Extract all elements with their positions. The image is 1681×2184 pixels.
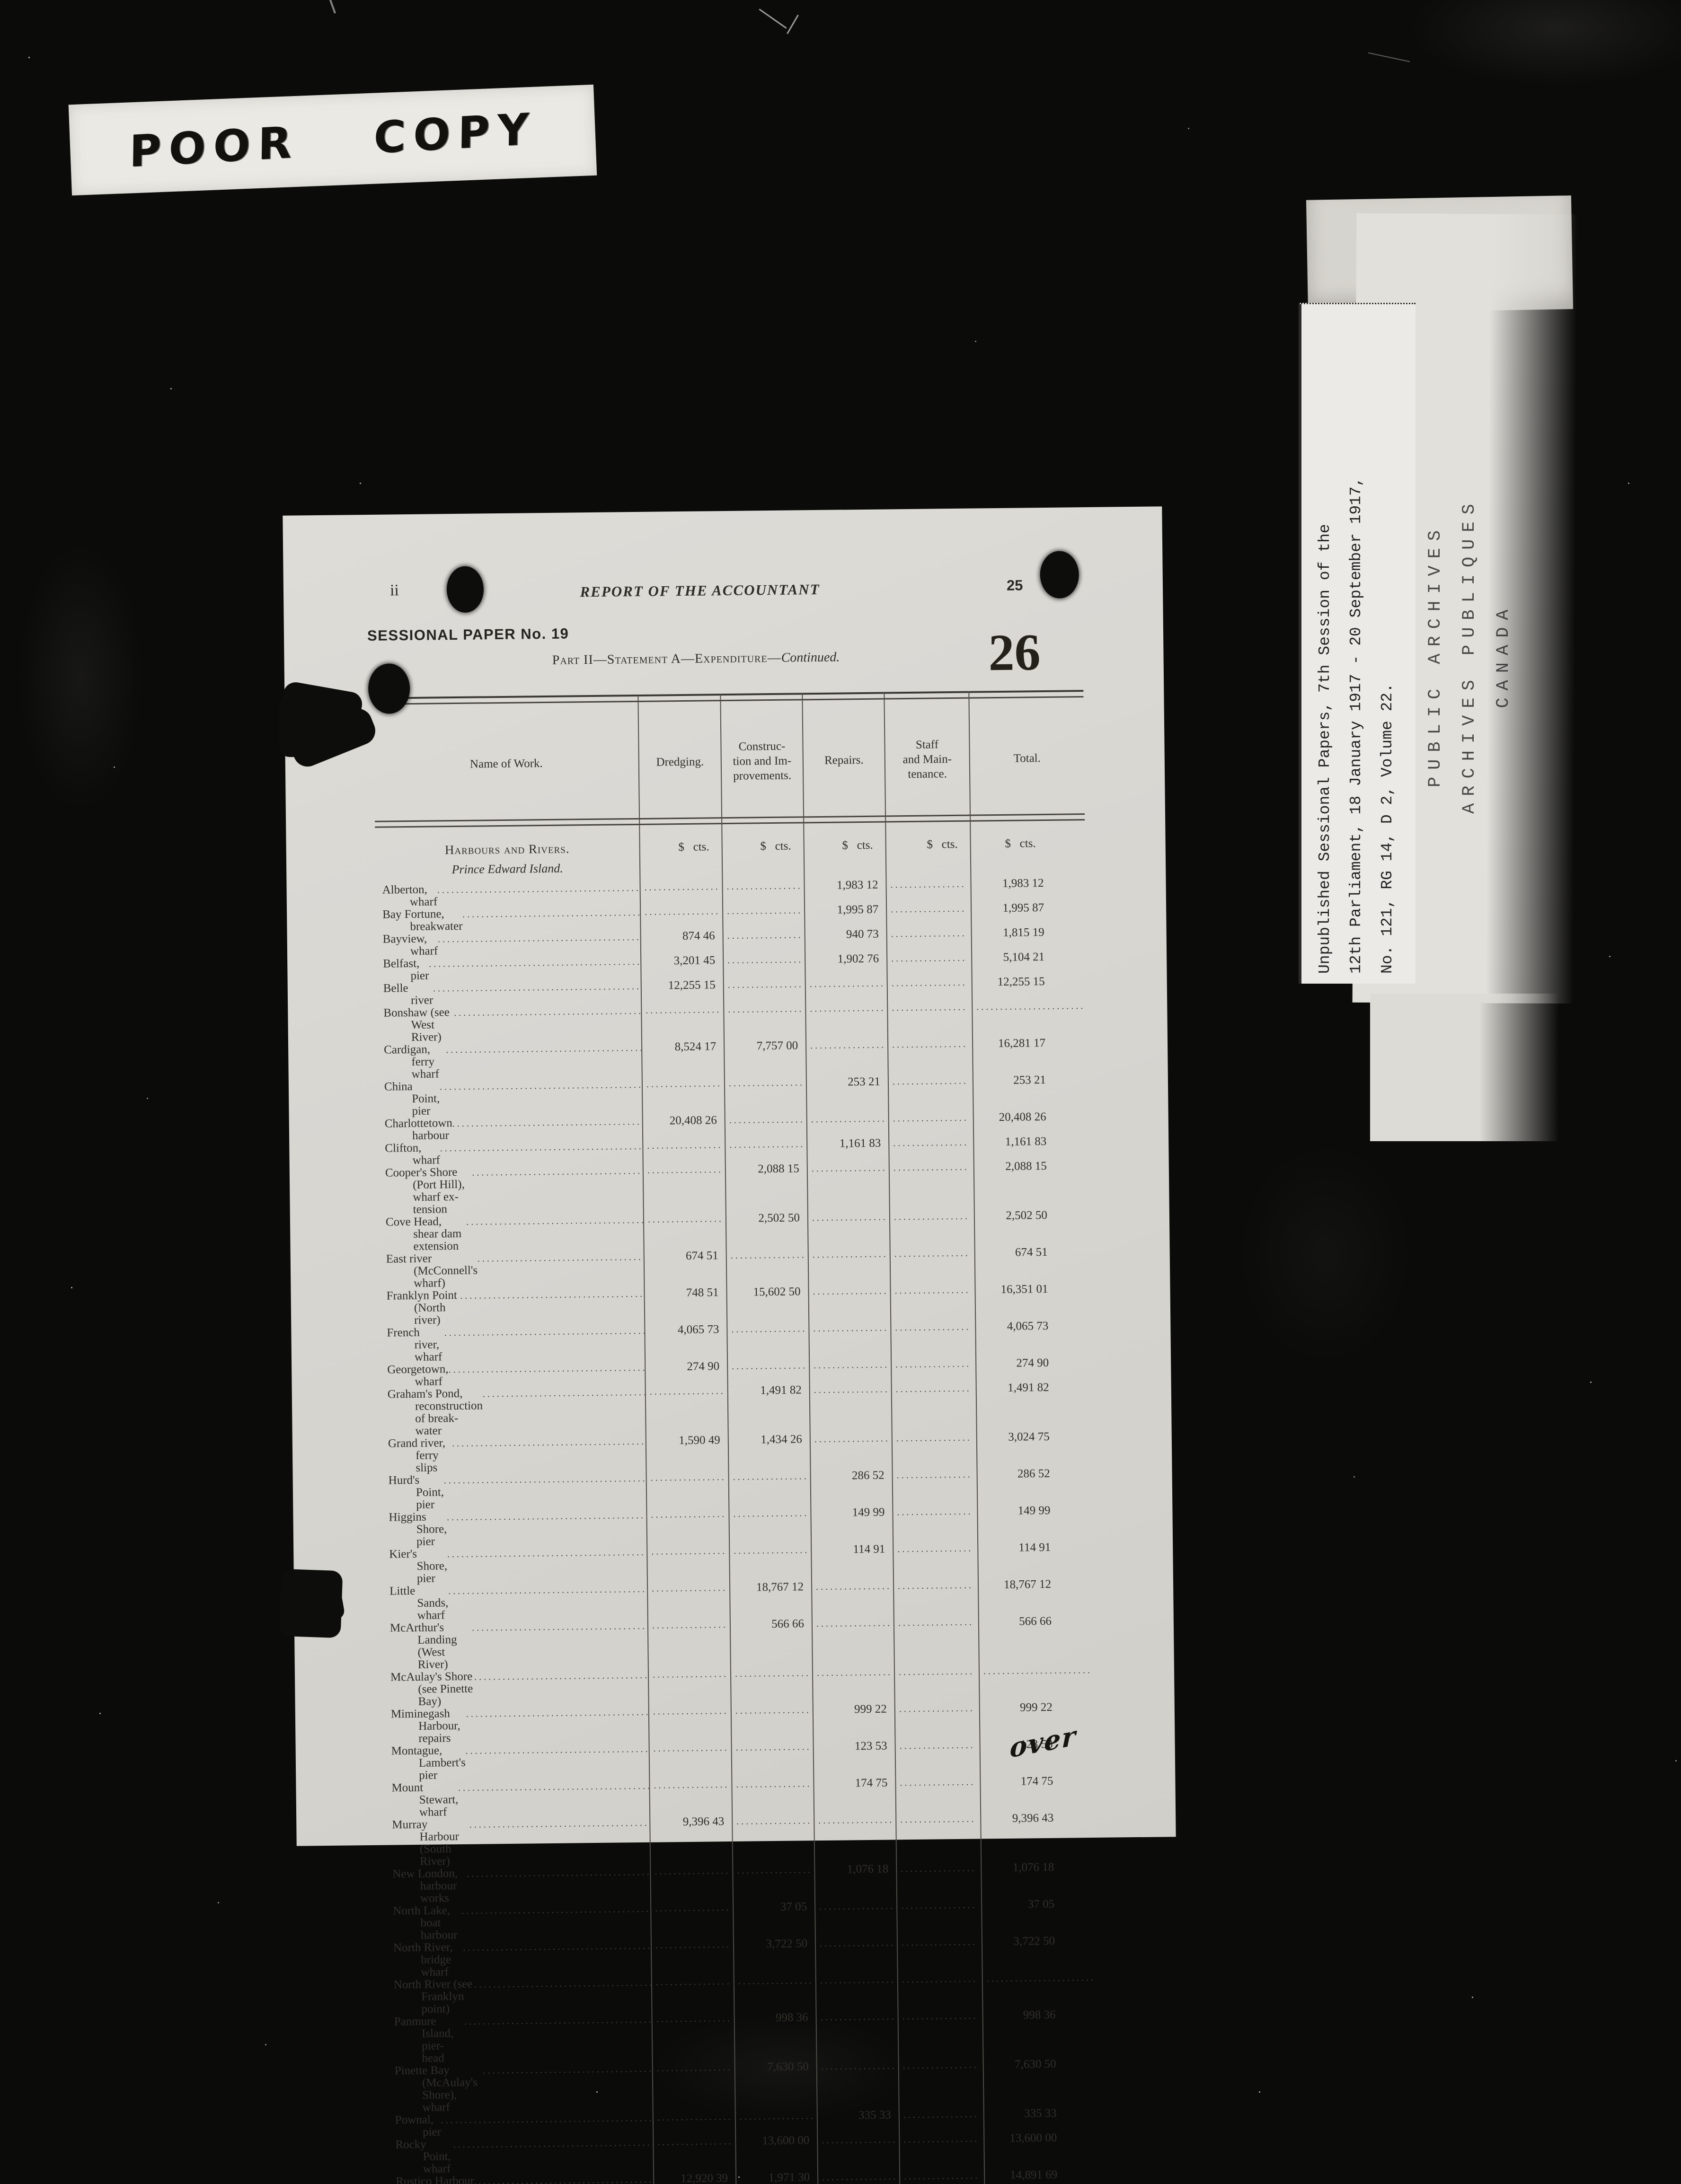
row-name-text: Little Sands, wharf bbox=[389, 1585, 449, 1622]
amount-cell bbox=[814, 1814, 896, 1864]
row-name-text: Kier's Shore, pier bbox=[389, 1548, 447, 1585]
amount-cell: 1,434 26 bbox=[728, 1433, 810, 1471]
amount-cell bbox=[893, 1579, 978, 1617]
amount-cell bbox=[652, 2061, 735, 2112]
amount-cell bbox=[894, 1616, 979, 1666]
dot-leader bbox=[462, 906, 640, 921]
amount-cell: 748 51 bbox=[644, 1286, 726, 1324]
amount-cell bbox=[643, 1163, 725, 1214]
public-archives-line: ARCHIVES PUBLIQUES bbox=[1452, 442, 1486, 868]
row-name-text: Panmure Island, pier-head bbox=[394, 2015, 465, 2065]
amount-cell bbox=[732, 1814, 814, 1865]
name-cell: Little Sands, wharf bbox=[383, 1583, 647, 1622]
amount-cell bbox=[888, 1075, 973, 1113]
dot-leader bbox=[447, 1509, 646, 1524]
dot-leader bbox=[474, 1976, 651, 1991]
dot-leader bbox=[463, 1939, 651, 1954]
dot-leader bbox=[466, 1706, 648, 1720]
public-archives-line: CANADA bbox=[1486, 442, 1521, 868]
amount-cell bbox=[886, 927, 972, 953]
amount-cell bbox=[735, 2110, 817, 2135]
amount-cell: 7,630 50 bbox=[983, 2058, 1098, 2108]
poor-copy-text: POOR COPY bbox=[129, 103, 537, 176]
row-name-text: China Point, pier bbox=[384, 1080, 440, 1118]
amount-cell: 1,491 82 bbox=[727, 1384, 810, 1434]
row-name-text: Murray Harbour (South River) bbox=[392, 1818, 470, 1868]
film-scratch bbox=[759, 9, 787, 29]
amount-cell bbox=[724, 1076, 806, 1114]
amount-cell: 149 99 bbox=[977, 1504, 1092, 1542]
amount-cell bbox=[897, 1936, 982, 1974]
amount-cell bbox=[646, 1545, 729, 1583]
name-cell: New London, harbour works bbox=[386, 1866, 650, 1905]
amount-cell bbox=[653, 2135, 735, 2173]
unit-cell: $ cts. bbox=[639, 828, 722, 854]
row-name-text: Pownal, pier bbox=[395, 2114, 441, 2139]
folio-left: ii bbox=[390, 581, 399, 599]
amount-cell bbox=[807, 1211, 890, 1249]
table-row: Panmure Island, pier-head998 36998 36 bbox=[388, 2008, 1098, 2065]
amount-cell bbox=[979, 1664, 1094, 1702]
amount-cell: 174 75 bbox=[980, 1775, 1095, 1813]
amount-cell bbox=[728, 1470, 811, 1508]
amount-cell bbox=[886, 952, 972, 978]
amount-cell bbox=[646, 1471, 729, 1509]
dot-leader bbox=[465, 1743, 648, 1757]
amount-cell: 114 91 bbox=[977, 1541, 1093, 1579]
row-name-text: Rocky Point, wharf bbox=[395, 2138, 453, 2175]
amount-cell bbox=[888, 1136, 973, 1162]
amount-cell: 9,396 43 bbox=[649, 1815, 732, 1866]
name-cell: Clifton, wharf bbox=[378, 1140, 643, 1167]
amount-cell bbox=[652, 2012, 734, 2062]
name-cell: Mount Stewart, wharf bbox=[385, 1779, 649, 1819]
dot-leader bbox=[461, 1902, 650, 1917]
statement-title: Part II—Statement A—Expenditure—Continue… bbox=[440, 649, 951, 669]
amount-cell: 174 75 bbox=[813, 1777, 895, 1814]
name-cell: Georgetown, wharf bbox=[380, 1361, 645, 1389]
section-title: Prince Edward Island. bbox=[375, 854, 640, 884]
amount-cell bbox=[899, 2108, 984, 2133]
row-name-text: French river, wharf bbox=[387, 1326, 444, 1364]
row-name-text: Mount Stewart, wharf bbox=[391, 1781, 458, 1819]
amount-cell bbox=[723, 978, 805, 1004]
amount-cell bbox=[646, 1508, 729, 1546]
row-name-text: Bonshaw (see West River) bbox=[383, 1006, 454, 1044]
amount-cell bbox=[726, 1249, 808, 1286]
dot-leader bbox=[460, 1287, 644, 1302]
dot-leader bbox=[458, 1779, 649, 1794]
amount-cell bbox=[812, 1617, 894, 1667]
amount-cell: 2,088 15 bbox=[725, 1162, 807, 1213]
amount-cell: 566 66 bbox=[730, 1618, 812, 1668]
amount-cell: 15,602 50 bbox=[726, 1286, 808, 1323]
row-name-text: Clifton, wharf bbox=[385, 1142, 440, 1167]
row-name-text: Franklyn Point (North river) bbox=[386, 1289, 460, 1327]
column-header: Name of Work. bbox=[374, 706, 639, 821]
film-smudge bbox=[1410, 0, 1681, 85]
amount-cell: 18,767 12 bbox=[729, 1581, 812, 1619]
amount-cell: 1,902 76 bbox=[805, 952, 887, 978]
film-scratch bbox=[329, 0, 336, 14]
amount-cell bbox=[889, 1161, 974, 1211]
row-name-text: McAulay's Shore (see Pinette Bay) bbox=[390, 1671, 475, 1708]
amount-cell: 7,630 50 bbox=[734, 2061, 817, 2111]
amount-cell bbox=[653, 2111, 735, 2136]
name-cell: Cooper's Shore (Port Hill), wharf ex- te… bbox=[379, 1164, 643, 1216]
amount-cell bbox=[891, 1358, 976, 1383]
amount-cell bbox=[722, 852, 804, 881]
amount-cell bbox=[885, 878, 971, 904]
page-number-stamp: 26 bbox=[988, 622, 1041, 683]
name-cell: Grand river, ferry slips bbox=[381, 1435, 646, 1475]
amount-cell: 874 46 bbox=[640, 930, 723, 955]
film-scratch bbox=[787, 15, 799, 34]
amount-cell bbox=[641, 1004, 724, 1041]
dot-leader bbox=[433, 980, 641, 995]
name-cell: Higgins Shore, pier bbox=[382, 1509, 646, 1549]
amount-cell bbox=[891, 1383, 976, 1433]
amount-cell bbox=[649, 1742, 732, 1779]
name-cell: Cardigan, ferry wharf bbox=[377, 1041, 642, 1081]
amount-cell bbox=[897, 2009, 982, 2060]
sessional-paper-line: SESSIONAL PAPER No. 19 bbox=[367, 625, 569, 644]
row-name-text: Hurd's Point, pier bbox=[389, 1474, 444, 1511]
statement-title-continued: Continued. bbox=[781, 650, 840, 665]
amount-cell bbox=[723, 929, 805, 954]
amount-cell bbox=[982, 1972, 1097, 2010]
amount-cell bbox=[806, 1112, 889, 1138]
column-header: Repairs. bbox=[802, 704, 885, 817]
film-scratch bbox=[1368, 53, 1410, 62]
dot-leader bbox=[444, 1472, 646, 1487]
name-cell: Murray Harbour (South River) bbox=[385, 1816, 650, 1868]
name-cell: Cove Head, shear dam extension bbox=[379, 1214, 644, 1253]
amount-cell bbox=[808, 1285, 890, 1322]
row-name-text: North Lake, boat harbour bbox=[393, 1904, 462, 1942]
amount-cell bbox=[805, 1002, 887, 1039]
amount-cell: 149 99 bbox=[810, 1506, 893, 1544]
row-name-text: Cardigan, ferry wharf bbox=[384, 1043, 446, 1081]
name-cell: Graham's Pond, reconstruction of break- … bbox=[381, 1386, 646, 1438]
archive-reference-text: Unpublished Sessional Papers, 7th Sessio… bbox=[1309, 311, 1403, 974]
amount-cell: 2,502 50 bbox=[974, 1209, 1089, 1247]
amount-cell: 20,408 26 bbox=[642, 1114, 725, 1140]
amount-cell bbox=[889, 1210, 974, 1248]
column-header: Total. bbox=[969, 702, 1085, 815]
name-cell: French river, wharf bbox=[380, 1324, 645, 1364]
amount-cell: 253 21 bbox=[973, 1074, 1088, 1112]
amount-cell bbox=[640, 905, 723, 931]
unit-cell: $ cts. bbox=[885, 826, 970, 852]
dot-leader bbox=[429, 955, 640, 970]
dot-leader bbox=[474, 1669, 648, 1683]
amount-cell: 274 90 bbox=[975, 1356, 1091, 1383]
amount-cell bbox=[807, 1162, 889, 1212]
amount-cell bbox=[648, 1705, 731, 1743]
name-cell: Rustico Harbour, beach protection bbox=[389, 2173, 654, 2184]
amount-cell bbox=[649, 1779, 732, 1816]
amount-cell bbox=[723, 1003, 805, 1040]
row-name-text: Bay Fortune, breakwater bbox=[382, 908, 463, 933]
name-cell: Hurd's Point, pier bbox=[382, 1472, 646, 1512]
dot-leader bbox=[467, 1866, 650, 1880]
name-cell: China Point, pier bbox=[378, 1078, 642, 1118]
amount-cell bbox=[815, 2010, 898, 2061]
row-name-text: Cove Head, shear dam extension bbox=[386, 1215, 467, 1253]
amount-cell bbox=[895, 1813, 981, 1863]
column-header: Construc- tion and Im- provements. bbox=[720, 705, 803, 817]
amount-cell bbox=[809, 1383, 892, 1433]
amount-cell: 4,065 73 bbox=[644, 1323, 727, 1361]
amount-cell bbox=[729, 1544, 811, 1582]
dot-leader bbox=[437, 881, 640, 896]
amount-cell bbox=[894, 1739, 980, 1777]
dot-leader bbox=[478, 2173, 653, 2184]
amount-cell bbox=[887, 1038, 973, 1076]
amount-cell: 999 22 bbox=[813, 1703, 895, 1741]
amount-cell: 1,161 83 bbox=[973, 1135, 1088, 1161]
dot-leader bbox=[440, 1140, 643, 1154]
amount-cell: 1,491 82 bbox=[976, 1381, 1091, 1432]
name-cell: Miminegash Harbour, repairs bbox=[384, 1706, 649, 1745]
dot-leader bbox=[454, 1004, 641, 1019]
amount-cell bbox=[892, 1469, 977, 1506]
tape-strip bbox=[1370, 994, 1569, 1141]
dot-leader bbox=[444, 1324, 645, 1339]
amount-cell: 674 51 bbox=[644, 1250, 726, 1287]
row-name-text: Belfast, pier bbox=[383, 958, 429, 983]
name-cell: North River, bridge wharf bbox=[387, 1939, 651, 1979]
amount-cell: 940 73 bbox=[805, 928, 887, 953]
name-cell: North River (see Franklyn point) bbox=[387, 1976, 652, 2016]
row-name-text: Grand river, ferry slips bbox=[388, 1437, 452, 1474]
row-name-text: New London, harbour works bbox=[392, 1867, 467, 1905]
amount-cell bbox=[890, 1247, 975, 1285]
row-name-text: North River, bridge wharf bbox=[393, 1941, 463, 1979]
amount-cell: 1,995 87 bbox=[971, 901, 1086, 927]
name-cell: McAulay's Shore (see Pinette Bay) bbox=[384, 1669, 648, 1708]
dot-leader bbox=[440, 1078, 642, 1093]
dot-leader bbox=[469, 1816, 650, 1831]
amount-cell bbox=[887, 1001, 972, 1039]
amount-cell: 114 91 bbox=[811, 1543, 893, 1581]
amount-cell: 12,920 39 bbox=[653, 2172, 736, 2184]
dot-leader bbox=[478, 1251, 644, 1265]
expenditure-table: Name of Work.Dredging.Construc- tion and… bbox=[373, 690, 1107, 2184]
amount-cell bbox=[887, 977, 972, 1002]
amount-cell bbox=[725, 1113, 807, 1139]
name-cell: Belfast, pier bbox=[376, 955, 641, 983]
amount-cell bbox=[808, 1248, 890, 1286]
dot-leader bbox=[472, 1620, 647, 1634]
dot-leader bbox=[453, 2136, 653, 2151]
amount-cell bbox=[815, 1937, 897, 1974]
amount-cell: 3,722 50 bbox=[982, 1935, 1097, 1973]
amount-cell: 12,255 15 bbox=[972, 975, 1087, 1001]
amount-cell bbox=[896, 1899, 982, 1937]
amount-cell bbox=[817, 2133, 899, 2171]
amount-cell bbox=[723, 953, 805, 979]
amount-cell: 1,983 12 bbox=[970, 877, 1086, 903]
amount-cell bbox=[899, 2132, 984, 2170]
amount-cell: 3,201 45 bbox=[640, 954, 723, 980]
row-name-text: East river (McConnell's wharf) bbox=[386, 1252, 478, 1290]
name-cell: Belle river bbox=[377, 980, 641, 1007]
unit-cell: $ cts. bbox=[803, 827, 885, 853]
name-cell: Panmure Island, pier-head bbox=[388, 2013, 652, 2065]
archive-reference-line: 12th Parliament, 18 January 1917 - 20 Se… bbox=[1341, 311, 1372, 974]
amount-cell: 7,757 00 bbox=[724, 1039, 806, 1077]
unit-cell: $ cts. bbox=[721, 828, 804, 853]
amount-cell bbox=[892, 1506, 977, 1543]
amount-cell: 1,995 87 bbox=[804, 904, 886, 929]
amount-cell bbox=[647, 1582, 730, 1620]
folio-right: 25 bbox=[1007, 577, 1023, 594]
amount-cell bbox=[892, 1432, 977, 1470]
amount-cell bbox=[899, 2169, 984, 2184]
amount-cell: 16,351 01 bbox=[974, 1283, 1090, 1321]
amount-cell bbox=[898, 2059, 983, 2109]
amount-cell bbox=[810, 1432, 892, 1470]
public-archives-line: PUBLIC ARCHIVES bbox=[1418, 442, 1452, 868]
amount-cell bbox=[642, 1077, 725, 1115]
row-name-text: Alberton, wharf bbox=[382, 883, 437, 908]
amount-cell: 1,161 83 bbox=[806, 1137, 889, 1162]
amount-cell bbox=[728, 1507, 811, 1545]
dot-leader bbox=[466, 1214, 643, 1228]
amount-cell: 16,281 17 bbox=[972, 1037, 1088, 1075]
column-header: Staff and Main- tenance. bbox=[884, 703, 970, 816]
amount-cell bbox=[888, 1112, 973, 1137]
dot-leader bbox=[452, 1435, 646, 1450]
amount-cell bbox=[893, 1542, 978, 1580]
amount-cell: 286 52 bbox=[976, 1467, 1092, 1506]
table-row: Cooper's Shore (Port Hill), wharf ex- te… bbox=[379, 1160, 1089, 1216]
amount-cell: 274 90 bbox=[645, 1360, 727, 1386]
amount-cell: 253 21 bbox=[806, 1075, 888, 1113]
punch-hole bbox=[1040, 551, 1079, 599]
row-name-text: North River (see Franklyn point) bbox=[394, 1978, 475, 2016]
amount-cell bbox=[730, 1667, 813, 1705]
amount-cell bbox=[639, 853, 722, 881]
amount-cell: 9,396 43 bbox=[980, 1812, 1096, 1862]
amount-cell bbox=[731, 1741, 814, 1779]
amount-cell bbox=[650, 1865, 733, 1902]
amount-cell: 1,076 18 bbox=[981, 1861, 1096, 1899]
amount-cell: 8,524 17 bbox=[641, 1040, 724, 1078]
amount-cell bbox=[651, 1938, 734, 1976]
amount-cell bbox=[805, 977, 887, 1003]
name-cell: Rocky Point, wharf bbox=[389, 2136, 653, 2176]
name-cell: Pownal, pier bbox=[389, 2112, 653, 2139]
amount-cell: 998 36 bbox=[734, 2011, 816, 2061]
amount-cell bbox=[650, 1902, 733, 1939]
running-head: REPORT OF THE ACCOUNTANT bbox=[435, 580, 965, 602]
amount-cell: 1,971 30 bbox=[735, 2171, 818, 2184]
amount-cell bbox=[805, 1039, 888, 1076]
amount-cell bbox=[814, 1900, 897, 1937]
unit-cell: $ cts. bbox=[970, 825, 1085, 851]
row-name-text: Graham's Pond, reconstruction of break- … bbox=[388, 1387, 483, 1437]
row-name-text: McArthur's Landing (West River) bbox=[390, 1621, 472, 1672]
poor-copy-stamp: POOR COPY bbox=[69, 85, 597, 195]
amount-cell bbox=[890, 1284, 975, 1322]
row-name-text: Bayview, wharf bbox=[383, 933, 438, 958]
dot-leader bbox=[441, 2112, 653, 2127]
amount-cell bbox=[651, 1975, 734, 2013]
dot-leader bbox=[483, 1386, 645, 1400]
amount-cell: 3,722 50 bbox=[733, 1937, 815, 1975]
film-smudge bbox=[1240, 1145, 1410, 1363]
amount-cell bbox=[727, 1359, 809, 1385]
archive-reference-line: Unpublished Sessional Papers, 7th Sessio… bbox=[1309, 311, 1341, 974]
amount-cell bbox=[894, 1702, 980, 1740]
table-row: Murray Harbour (South River)9,396 439,39… bbox=[385, 1812, 1096, 1868]
name-cell: Franklyn Point (North river) bbox=[380, 1287, 644, 1327]
name-cell: North Lake, boat harbour bbox=[386, 1902, 651, 1942]
dot-leader bbox=[464, 2013, 652, 2028]
amount-cell: 14,891 69 bbox=[984, 2168, 1099, 2184]
row-name-text: Pinette Bay (McAulay's Shore), wharf bbox=[395, 2064, 484, 2114]
dot-leader bbox=[448, 1583, 647, 1597]
amount-cell bbox=[639, 881, 722, 906]
amount-cell: 335 33 bbox=[983, 2107, 1099, 2133]
amount-cell: 286 52 bbox=[810, 1469, 893, 1507]
amount-cell bbox=[726, 1322, 809, 1360]
row-name-text: Miminegash Harbour, repairs bbox=[391, 1708, 467, 1745]
row-name-text: Montague, Lambert's pier bbox=[391, 1744, 466, 1782]
row-name-text: Charlottetown harbour bbox=[385, 1117, 453, 1142]
document-page: ii REPORT OF THE ACCOUNTANT 25 SESSIONAL… bbox=[283, 506, 1176, 1846]
amount-cell: 1,590 49 bbox=[646, 1434, 728, 1472]
amount-cell: 20,408 26 bbox=[973, 1110, 1088, 1136]
amount-cell: 566 66 bbox=[978, 1615, 1094, 1665]
amount-cell bbox=[725, 1138, 807, 1163]
row-name-text: Georgetown, wharf bbox=[387, 1363, 449, 1388]
row-name-text: Cooper's Shore (Port Hill), wharf ex- te… bbox=[385, 1166, 473, 1216]
amount-cell bbox=[972, 1000, 1087, 1038]
amount-cell bbox=[809, 1358, 891, 1384]
amount-cell: 37 05 bbox=[981, 1898, 1097, 1936]
amount-cell bbox=[890, 1321, 975, 1359]
row-name-text: Belle river bbox=[383, 982, 434, 1007]
amount-cell bbox=[643, 1213, 726, 1251]
row-name-text: Higgins Shore, pier bbox=[389, 1511, 447, 1548]
name-cell: Charlottetown harbour bbox=[378, 1115, 643, 1143]
dot-leader bbox=[452, 1115, 642, 1130]
name-cell: McArthur's Landing (West River) bbox=[383, 1620, 648, 1672]
amount-cell: 335 33 bbox=[817, 2109, 899, 2134]
dot-leader bbox=[438, 931, 640, 945]
amount-cell: 18,767 12 bbox=[978, 1578, 1093, 1616]
amount-cell: 13,600 00 bbox=[735, 2134, 817, 2172]
amount-cell bbox=[642, 1139, 725, 1164]
amount-cell bbox=[645, 1385, 728, 1435]
punch-hole bbox=[446, 566, 484, 613]
column-header: Dredging. bbox=[638, 705, 721, 818]
amount-cell bbox=[885, 851, 971, 879]
table-row: McArthur's Landing (West River)566 66566… bbox=[383, 1615, 1094, 1672]
amount-cell: 1,983 12 bbox=[804, 879, 886, 905]
amount-cell: 2,088 15 bbox=[973, 1160, 1089, 1210]
name-cell: Kier's Shore, pier bbox=[382, 1546, 647, 1585]
amount-cell bbox=[808, 1321, 891, 1359]
amount-cell bbox=[722, 904, 805, 930]
amount-cell: 3,024 75 bbox=[976, 1430, 1092, 1469]
amount-cell: 4,065 73 bbox=[975, 1320, 1090, 1358]
dot-leader bbox=[448, 1361, 645, 1376]
